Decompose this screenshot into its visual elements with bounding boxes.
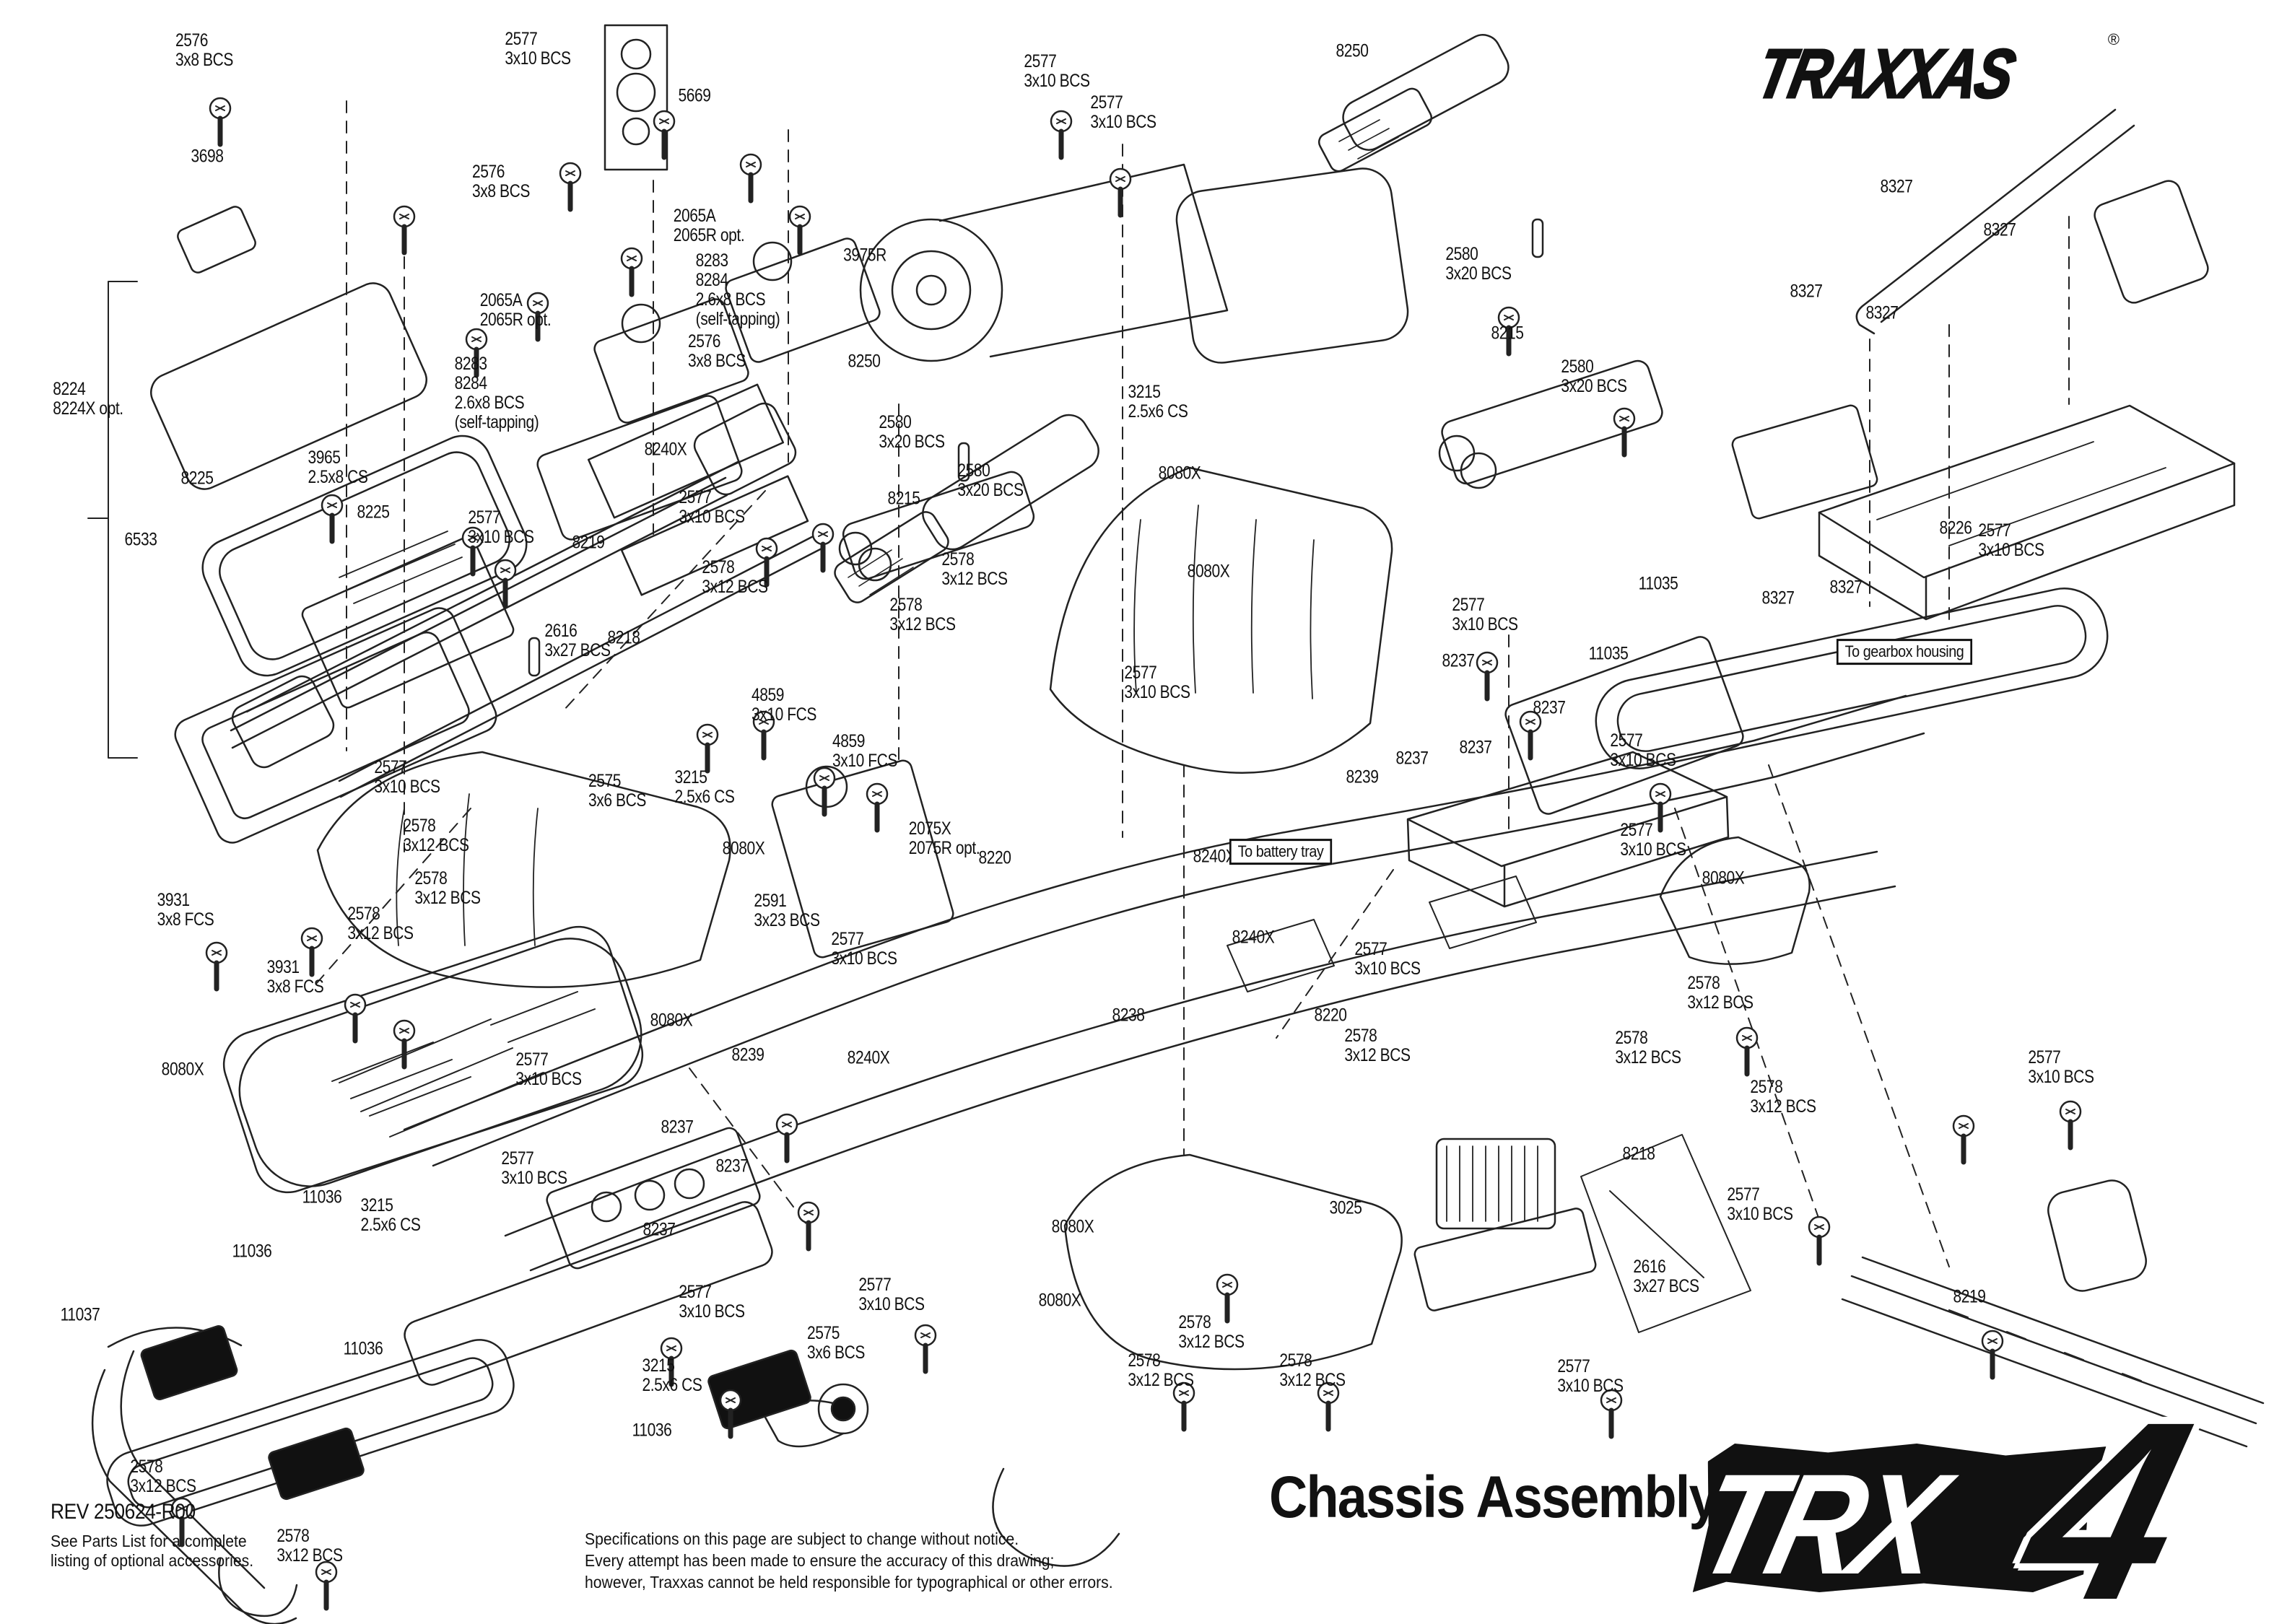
- disclaimer-line3: however, Traxxas cannot be held responsi…: [585, 1572, 1113, 1594]
- part-callout: 25773x10 BCS: [1354, 940, 1420, 979]
- part-callout: 25783x12 BCS: [1178, 1313, 1244, 1352]
- parts-list-note-line2: listing of optional accessories.: [51, 1551, 253, 1571]
- part-callout: 25773x10 BCS: [515, 1050, 581, 1089]
- motor-transmission-group: [831, 29, 1878, 837]
- part-callout: 25783x12 BCS: [1750, 1078, 1816, 1117]
- part-callout: 5669: [678, 87, 710, 106]
- part-callout: 8080X: [1052, 1218, 1094, 1237]
- part-callout: 8080X: [1159, 464, 1201, 484]
- part-callout: 11035: [1589, 645, 1629, 664]
- part-callout: 8237: [642, 1221, 675, 1240]
- part-callout: 25783x12 BCS: [130, 1457, 196, 1496]
- part-callout: 8240X: [848, 1049, 890, 1068]
- part-callout: 25753x6 BCS: [807, 1324, 865, 1363]
- part-callout: 8225: [357, 503, 389, 523]
- part-callout: 3025: [1329, 1199, 1362, 1218]
- part-callout: 11036: [232, 1242, 272, 1262]
- part-callout: 25773x10 BCS: [374, 758, 440, 797]
- part-callout: 3975R: [843, 246, 886, 266]
- diagram-note: To battery tray: [1229, 839, 1332, 865]
- part-callout: 25803x20 BCS: [1561, 357, 1626, 396]
- part-callout: 6533: [124, 531, 157, 550]
- part-callout: 8220: [1314, 1006, 1346, 1026]
- part-callout: 26163x27 BCS: [544, 621, 610, 660]
- part-callout: 8250: [848, 352, 880, 372]
- part-callout: 39313x8 FCS: [267, 958, 324, 997]
- part-callout: 25803x20 BCS: [1445, 245, 1511, 284]
- part-callout: 25753x6 BCS: [588, 772, 646, 811]
- part-callout: 11035: [1639, 575, 1678, 594]
- registered-trademark-symbol: ®: [2108, 30, 2120, 49]
- part-callout: 25783x12 BCS: [941, 550, 1007, 589]
- part-callout: 82248224X opt.: [53, 380, 123, 419]
- part-callout: 25783x12 BCS: [276, 1527, 342, 1566]
- part-callout: 25803x20 BCS: [957, 461, 1023, 500]
- part-callout: 8327: [1790, 282, 1822, 302]
- trx4-logo: TRX 4: [1698, 1406, 2274, 1623]
- part-callout: 25763x8 BCS: [175, 31, 233, 70]
- part-callout: 25773x10 BCS: [1024, 52, 1089, 91]
- revision-label: REV 250624-R00: [51, 1500, 196, 1524]
- part-callout: 8237: [1442, 652, 1474, 671]
- part-callout: 25773x10 BCS: [1090, 93, 1156, 132]
- part-callout: 8080X: [1039, 1291, 1081, 1311]
- part-callout: 25783x12 BCS: [1687, 974, 1753, 1013]
- part-callout: 8220: [978, 849, 1011, 868]
- part-callout: 25773x10 BCS: [831, 930, 897, 969]
- part-callout: 25773x10 BCS: [1452, 595, 1517, 634]
- part-callout: 8237: [1533, 699, 1565, 718]
- part-callout: 48593x10 FCS: [832, 732, 897, 771]
- part-callout: 8226: [1939, 519, 1972, 538]
- part-callout: 8327: [1829, 578, 1862, 598]
- part-callout: 2065A2065R opt.: [674, 206, 745, 245]
- part-callout: 25783x12 BCS: [702, 558, 767, 597]
- part-callout: 8327: [1865, 304, 1898, 323]
- part-callout: 8239: [1346, 768, 1378, 787]
- part-callout: 32152.5x6 CS: [360, 1196, 420, 1235]
- part-callout: 25773x10 BCS: [1557, 1357, 1623, 1396]
- parts-list-note-line1: See Parts List for a complete: [51, 1532, 253, 1551]
- part-callout: 25773x10 BCS: [1978, 521, 2044, 560]
- part-callout: 25773x10 BCS: [679, 488, 744, 527]
- part-callout: 25783x12 BCS: [1128, 1351, 1193, 1390]
- part-callout: 11036: [302, 1188, 342, 1208]
- part-callout: 25783x12 BCS: [347, 904, 413, 943]
- part-callout: 25783x12 BCS: [1279, 1351, 1345, 1390]
- part-callout: 25773x10 BCS: [1727, 1185, 1792, 1224]
- part-callout: 8240X: [1232, 928, 1275, 948]
- part-callout: 8239: [731, 1046, 764, 1065]
- part-callout: 32152.5x6 CS: [1128, 383, 1188, 422]
- part-callout: 8215: [1491, 324, 1523, 344]
- part-callout: 25783x12 BCS: [414, 869, 480, 908]
- diagram-note: To gearbox housing: [1837, 639, 1972, 665]
- part-callout: 25773x10 BCS: [1124, 663, 1190, 702]
- part-callout: 25763x8 BCS: [472, 162, 530, 201]
- part-callout: 25783x12 BCS: [889, 595, 955, 634]
- part-callout: 11036: [344, 1340, 383, 1359]
- part-callout: 8327: [1880, 178, 1912, 197]
- traxxas-logo: TRAXXAS ®: [1767, 35, 2114, 121]
- trx4-logo-trx-text: TRX: [1681, 1442, 1955, 1606]
- part-callout: 3698: [191, 147, 223, 167]
- part-callout: 32152.5x6 CS: [642, 1356, 702, 1395]
- part-callout: 25803x20 BCS: [879, 413, 944, 452]
- part-callout: 8250: [1336, 42, 1368, 61]
- part-callout: 39313x8 FCS: [157, 891, 214, 930]
- part-callout: 8237: [1459, 738, 1491, 758]
- part-callout: 25783x12 BCS: [1615, 1029, 1681, 1068]
- part-callout: 8237: [1395, 749, 1428, 769]
- part-callout: 32152.5x6 CS: [674, 768, 734, 807]
- part-callout: 8080X: [650, 1011, 693, 1031]
- part-callout: 48593x10 FCS: [752, 686, 816, 725]
- part-callout: 8225: [180, 469, 213, 489]
- part-callout: 828382842.6x8 BCS(self-tapping): [455, 354, 539, 432]
- part-callout: 8327: [1983, 221, 2016, 240]
- disclaimer-text: Specifications on this page are subject …: [585, 1529, 1113, 1594]
- part-callout: 8327: [1761, 589, 1794, 608]
- part-callout: 25773x10 BCS: [679, 1283, 744, 1322]
- part-callout: 25773x10 BCS: [1610, 731, 1676, 770]
- part-callout: 8080X: [1702, 869, 1745, 889]
- part-callout: 11037: [61, 1306, 100, 1325]
- part-callout: 25773x10 BCS: [468, 508, 533, 547]
- part-callout: 26163x27 BCS: [1633, 1257, 1699, 1296]
- part-callout: 39652.5x8 CS: [308, 448, 367, 487]
- part-callout: 25773x10 BCS: [505, 30, 570, 69]
- part-callout: 8219: [1953, 1288, 1985, 1307]
- part-callout: 8215: [887, 489, 920, 509]
- part-callout: 2075X2075R opt.: [909, 819, 980, 858]
- part-callout: 8237: [715, 1157, 748, 1176]
- part-callout: 8218: [607, 629, 640, 648]
- part-callout: 25773x10 BCS: [2028, 1048, 2094, 1087]
- disclaimer-line2: Every attempt has been made to ensure th…: [585, 1550, 1113, 1572]
- part-callout: 8240X: [645, 440, 687, 460]
- part-callout: 8080X: [162, 1060, 204, 1080]
- part-callout: 8218: [1622, 1145, 1655, 1164]
- part-callout: 25913x23 BCS: [754, 891, 819, 930]
- parts-diagram-sheet: 25763x8 BCS369882248224X opt.822539652.5…: [0, 0, 2274, 1624]
- part-callout: 8238: [1112, 1006, 1144, 1026]
- part-callout: 8237: [661, 1118, 693, 1138]
- part-callout: 2065A2065R opt.: [480, 291, 552, 330]
- part-callout: 25773x10 BCS: [1620, 821, 1686, 860]
- page-title: Chassis Assembly: [1269, 1464, 1717, 1532]
- parts-list-note: See Parts List for a complete listing of…: [51, 1532, 253, 1571]
- steering-servo-group: [347, 25, 882, 852]
- part-callout: 8080X: [1188, 562, 1230, 582]
- traxxas-logo-text: TRAXXAS: [1751, 35, 2044, 114]
- part-callout: 25763x8 BCS: [688, 332, 746, 371]
- part-callout: 828382842.6x8 BCS(self-tapping): [696, 251, 780, 329]
- part-callout: 25783x12 BCS: [1344, 1026, 1410, 1065]
- part-callout: 25783x12 BCS: [403, 816, 469, 855]
- part-callout: 8080X: [723, 839, 765, 859]
- disclaimer-line1: Specifications on this page are subject …: [585, 1529, 1113, 1550]
- part-callout: 8219: [572, 533, 604, 553]
- part-callout: 25773x10 BCS: [501, 1149, 567, 1188]
- part-callout: 11036: [632, 1421, 672, 1441]
- part-callout: 25773x10 BCS: [858, 1275, 924, 1314]
